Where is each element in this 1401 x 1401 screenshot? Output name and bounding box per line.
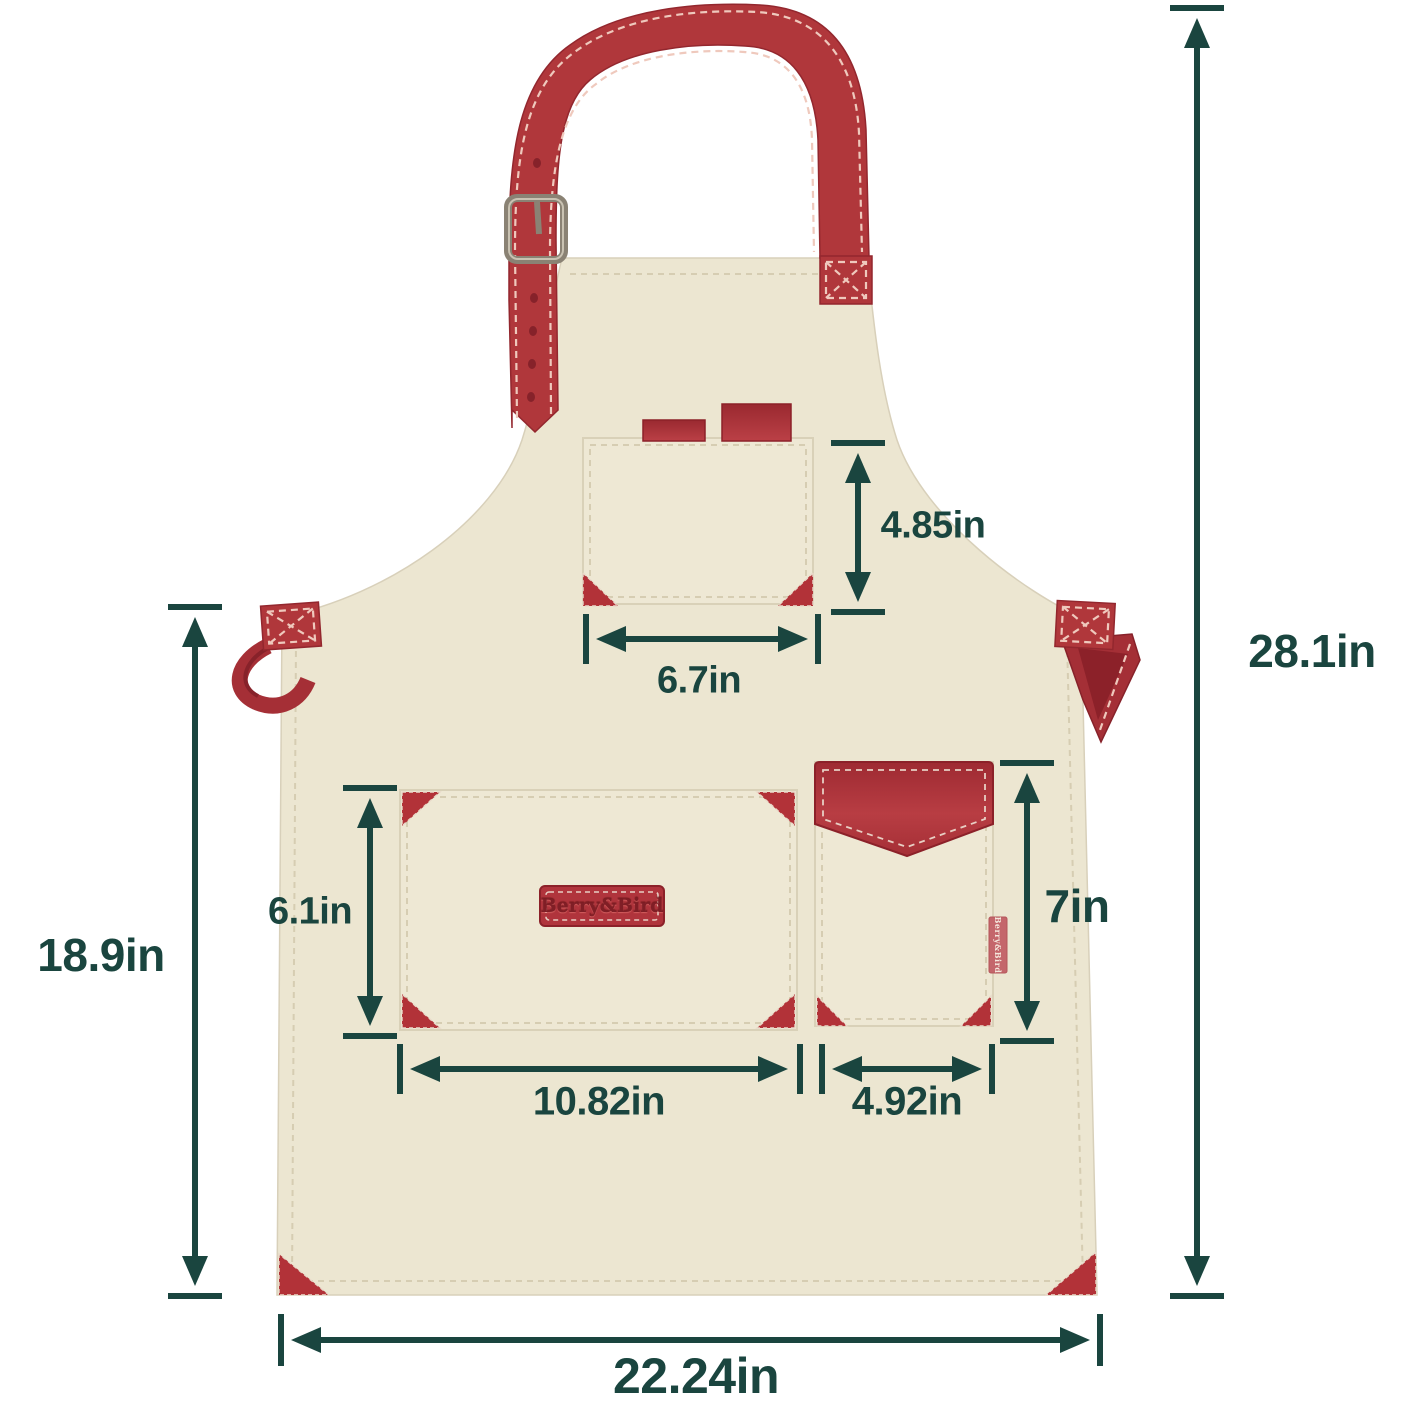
strap-attach-box-patch — [820, 256, 872, 304]
strap-hole — [528, 359, 536, 369]
dimension-arrow-overall-height — [1170, 8, 1224, 1296]
dimension-label-front-pocket-width: 10.82in — [533, 1080, 665, 1125]
dimension-label-body-height: 18.9in — [37, 928, 164, 982]
product-dimension-diagram: 28.1in 18.9in 4.85in 6.7in 6.1in 10.82in… — [0, 0, 1401, 1401]
side-tag-text: Berry&Bird — [993, 917, 1003, 974]
brand-patch-text: Berry&Bird — [541, 895, 664, 917]
dimension-label-side-pocket-height: 7in — [1045, 879, 1110, 933]
strap-hole — [533, 158, 541, 168]
dimension-label-chest-pocket-width: 6.7in — [657, 660, 741, 703]
dimension-label-chest-pocket-height: 4.85in — [881, 505, 986, 548]
tool-loop-large — [722, 404, 791, 441]
strap-hole — [530, 293, 538, 303]
dimension-label-overall-height: 28.1in — [1248, 624, 1375, 678]
dimension-label-bottom-width: 22.24in — [613, 1347, 779, 1401]
dimension-label-front-pocket-height: 6.1in — [268, 891, 352, 934]
dimension-arrow-body-height — [168, 607, 222, 1296]
strap-hole — [527, 392, 535, 402]
tool-loop-small — [643, 420, 705, 441]
strap-hole — [529, 326, 537, 336]
buckle-prong — [537, 202, 539, 234]
side-pocket — [815, 762, 1007, 1026]
dimension-label-side-pocket-width: 4.92in — [852, 1080, 962, 1125]
